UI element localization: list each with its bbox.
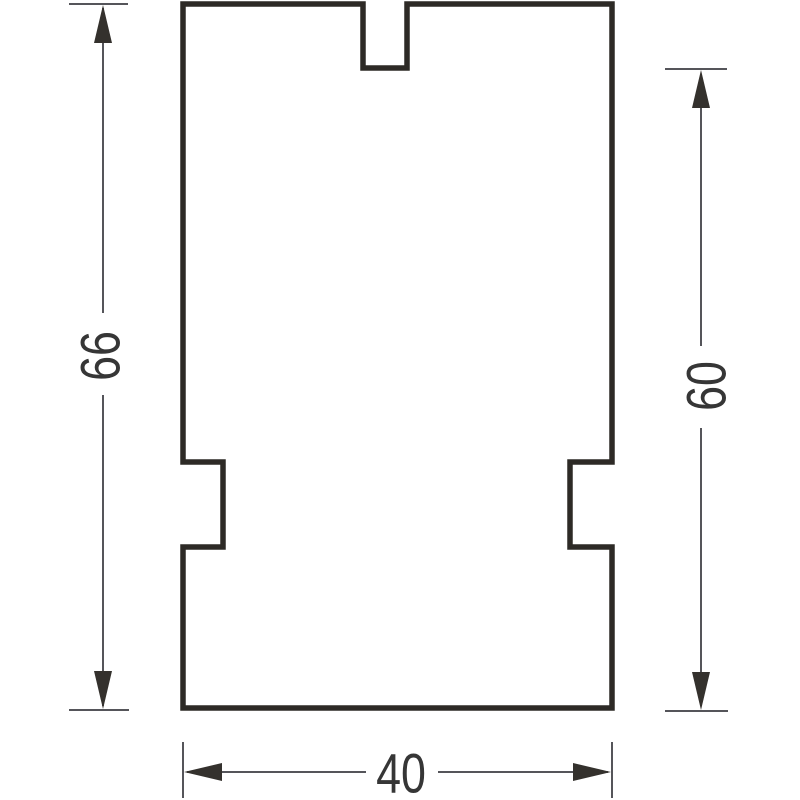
- dimension-bottom-width: 40: [183, 742, 612, 800]
- arrowhead-left-icon: [184, 763, 222, 781]
- arrowhead-down-icon: [94, 671, 112, 709]
- dimension-label-right-height: 60: [675, 361, 738, 411]
- technical-drawing: 66 60 40: [0, 0, 800, 800]
- dimension-label-total-height: 66: [69, 331, 132, 381]
- dimension-right-height: 60: [665, 69, 737, 711]
- arrowhead-up-icon: [94, 5, 112, 43]
- arrowhead-right-icon: [573, 763, 611, 781]
- arrowhead-down-icon: [692, 672, 710, 710]
- part-profile: [183, 4, 612, 708]
- dimension-left-total-height: 66: [69, 4, 132, 710]
- drawing-canvas: 66 60 40: [0, 0, 800, 800]
- dimension-label-width: 40: [376, 742, 426, 800]
- arrowhead-up-icon: [692, 70, 710, 108]
